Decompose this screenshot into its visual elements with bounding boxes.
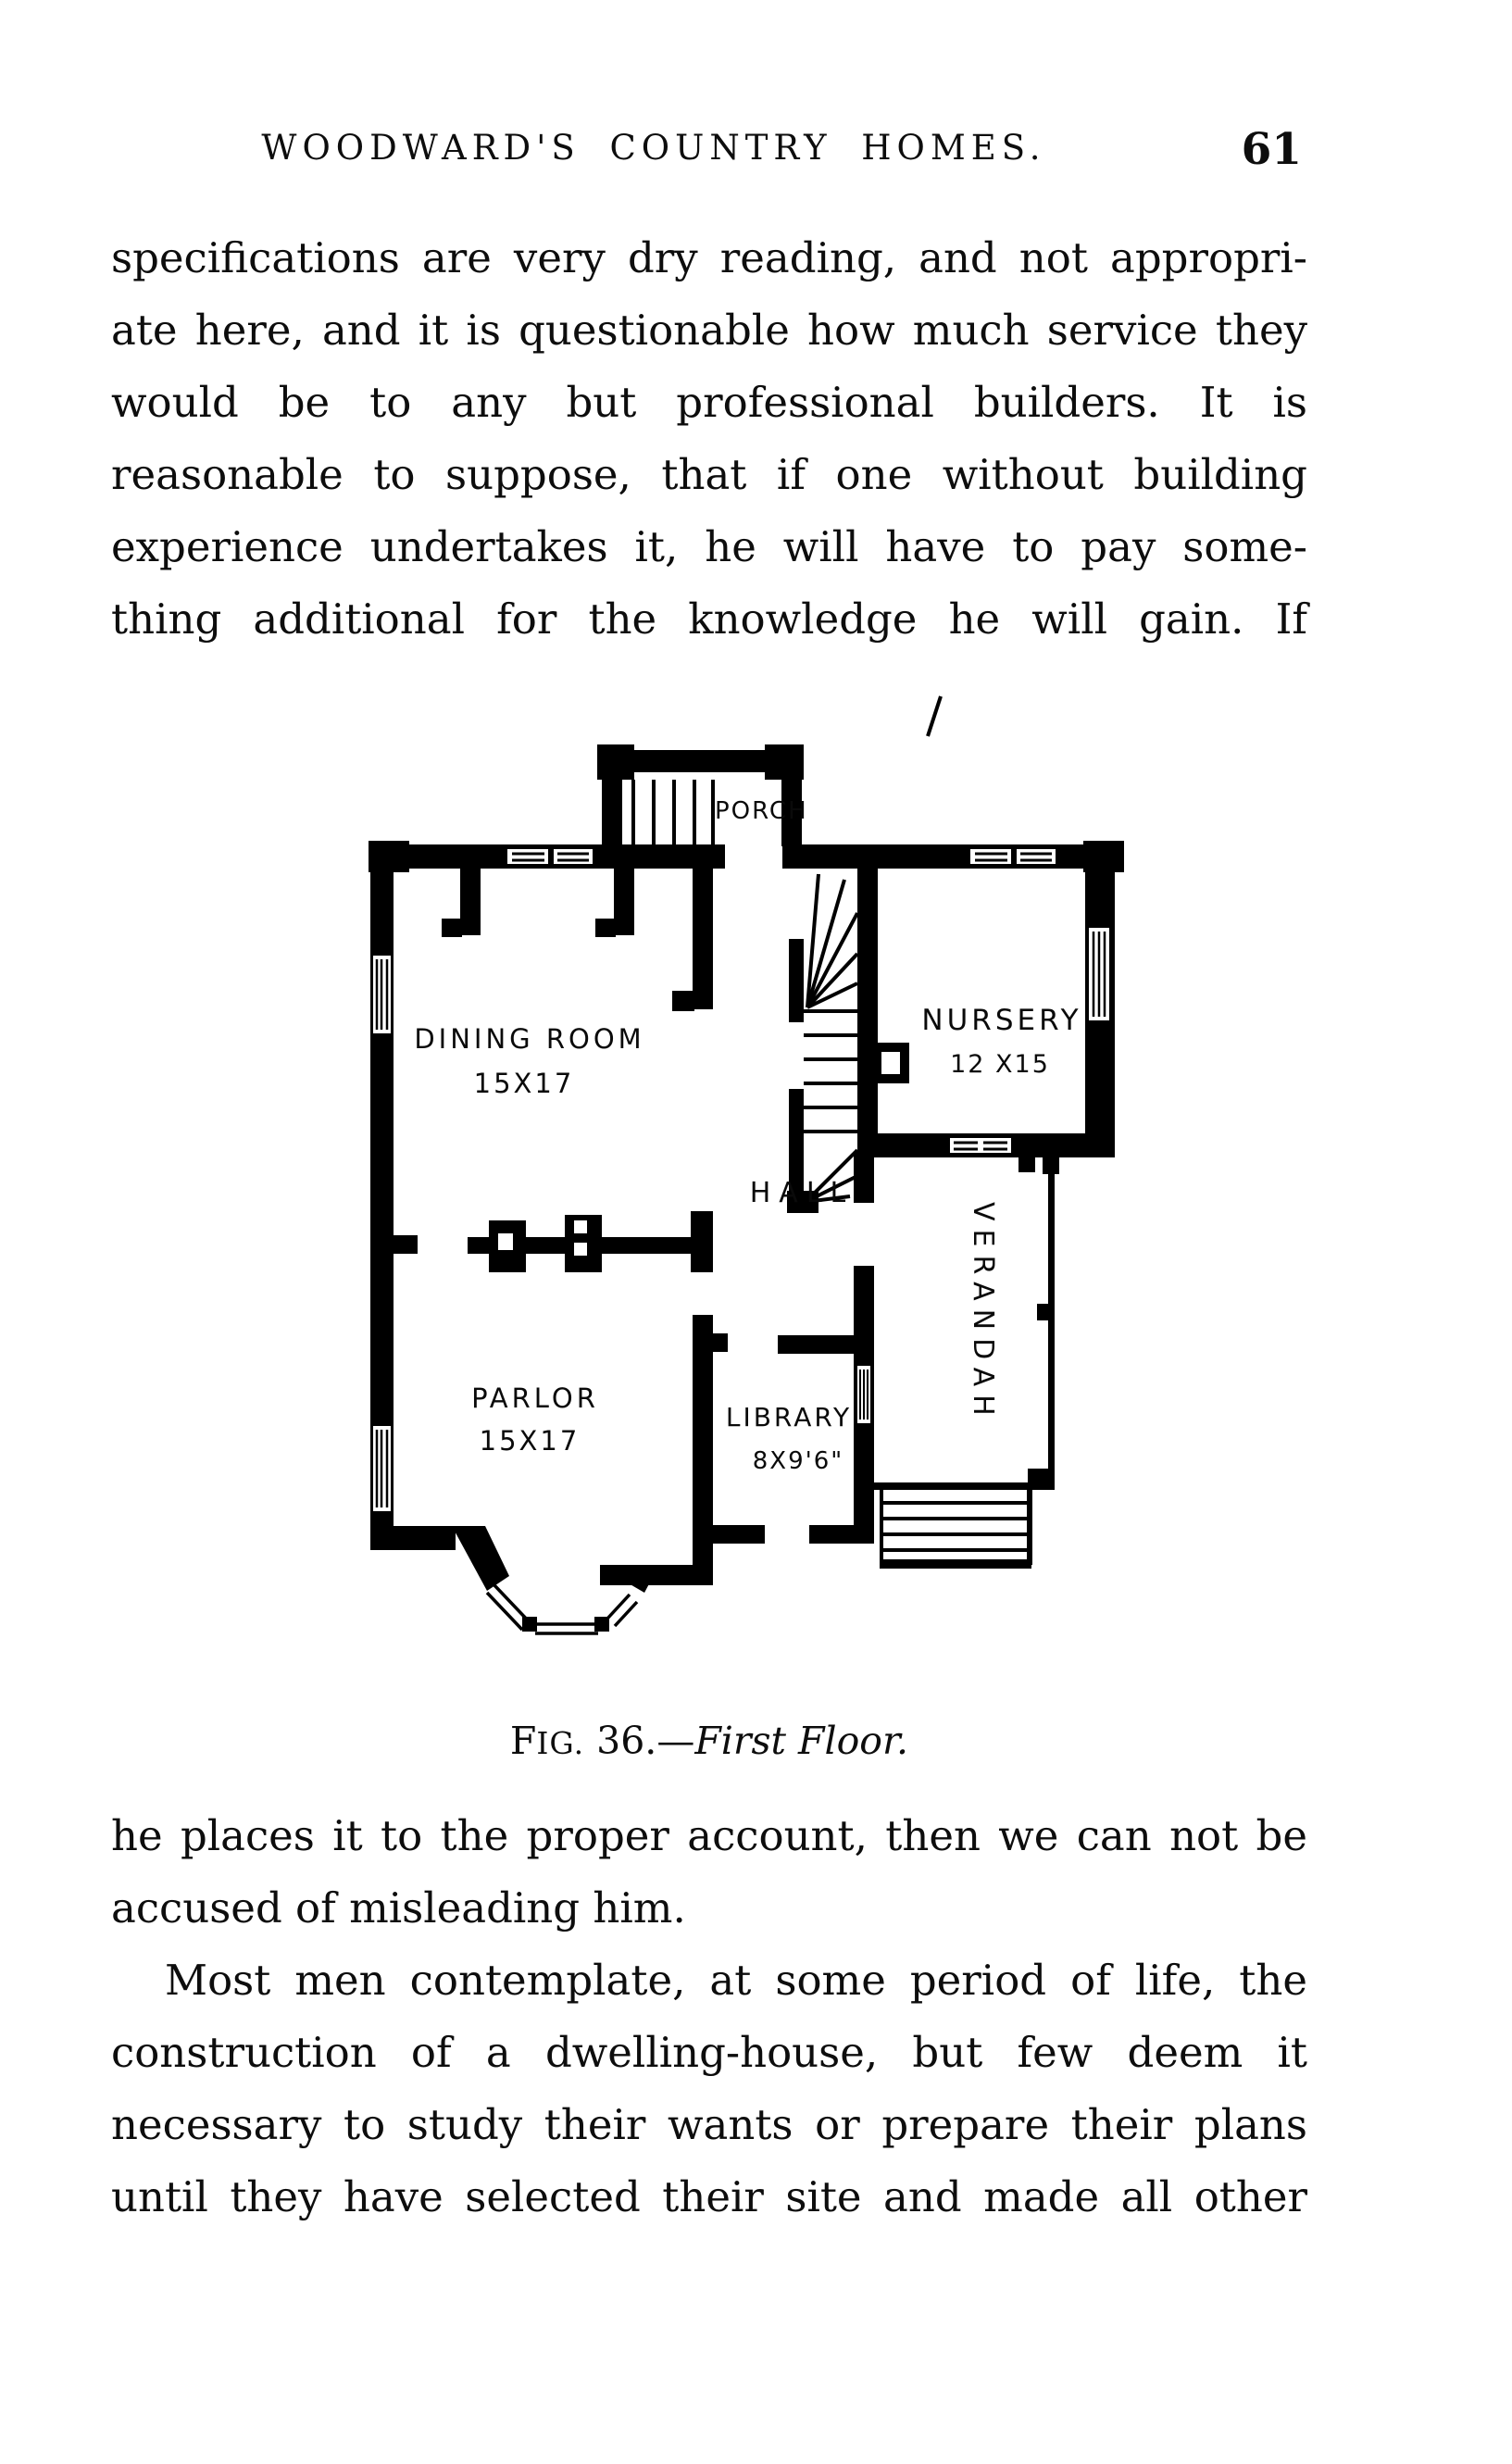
caption-fig-smallcaps: IG. <box>536 1725 584 1761</box>
room-size-dining: 15X17 <box>474 1068 575 1099</box>
nursery-windows <box>1089 928 1109 1020</box>
porch-steps <box>633 780 713 846</box>
text-line: accused of misleading him. <box>111 1872 1307 1945</box>
caption-fig: F <box>510 1719 536 1763</box>
text-line: Most men contemplate, at some period of … <box>111 1945 1307 2017</box>
caption-title: First Floor. <box>694 1719 908 1763</box>
room-label-verandah: VERANDAH <box>967 1202 999 1424</box>
text-line: he places it to the proper account, then… <box>111 1800 1307 1872</box>
text-line: construction of a dwelling-house, but fe… <box>111 2017 1307 2089</box>
room-label-parlor: PARLOR <box>471 1382 599 1414</box>
room-label-porch: PORCH <box>715 797 808 825</box>
room-label-nursery: NURSERY <box>921 1004 1081 1037</box>
stair-treads <box>804 874 857 1202</box>
room-label-library: LIBRARY <box>726 1402 852 1432</box>
room-label-dining: DINING ROOM <box>414 1023 644 1055</box>
library-window <box>857 1366 870 1423</box>
bay-window <box>487 1585 637 1633</box>
stray-mark <box>928 696 941 736</box>
figure-caption: FIG. 36.—First Floor. <box>111 1719 1307 1763</box>
caption-number: 36.— <box>584 1719 694 1763</box>
paragraph-2: he places it to the proper account, then… <box>111 1800 1307 1945</box>
room-size-library: 8X9'6" <box>753 1447 844 1475</box>
floor-plan-walls <box>369 696 1124 1633</box>
book-page: WOODWARD'S COUNTRY HOMES. 61 specificati… <box>0 0 1512 2464</box>
room-size-parlor: 15X17 <box>480 1425 581 1457</box>
text-line: necessary to study their wants or prepar… <box>111 2089 1307 2161</box>
verandah-steps <box>881 1485 1030 1565</box>
text-line: until they have selected their site and … <box>111 2161 1307 2233</box>
paragraph-3: Most men contemplate, at some period of … <box>111 1945 1307 2233</box>
front-windows <box>507 849 1056 864</box>
room-size-nursery: 12 X15 <box>950 1050 1050 1079</box>
room-label-hall: HALL <box>750 1177 855 1209</box>
